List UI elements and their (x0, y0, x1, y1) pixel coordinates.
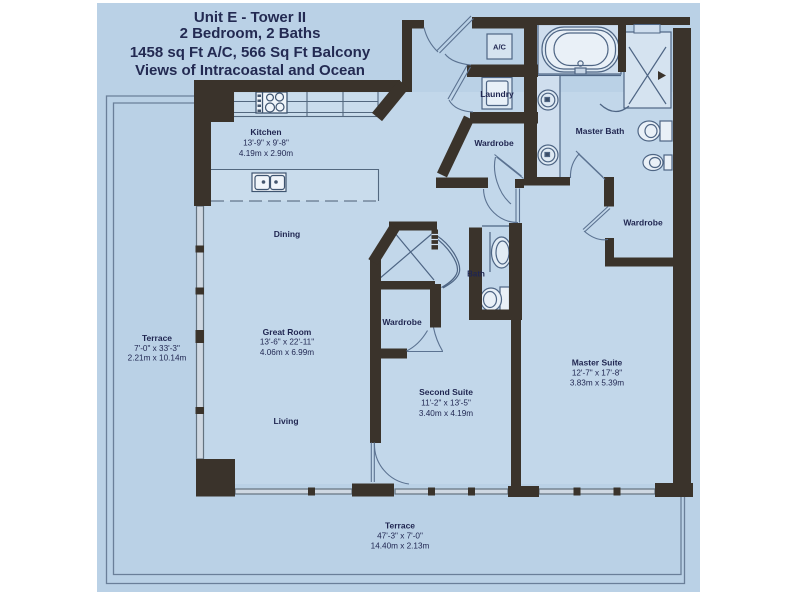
svg-text:3.40m x 4.19m: 3.40m x 4.19m (419, 409, 473, 418)
svg-text:3.83m x 5.39m: 3.83m x 5.39m (570, 379, 624, 388)
svg-text:2 Bedroom, 2 Baths: 2 Bedroom, 2 Baths (180, 25, 321, 42)
svg-text:4.19m x 2.90m: 4.19m x 2.90m (239, 149, 293, 158)
svg-text:14.40m x 2.13m: 14.40m x 2.13m (371, 542, 430, 551)
svg-text:11'-2" x 13'-5": 11'-2" x 13'-5" (421, 399, 471, 408)
svg-text:Kitchen: Kitchen (250, 127, 281, 137)
svg-text:Master Suite: Master Suite (572, 358, 623, 368)
svg-text:Unit E - Tower II: Unit E - Tower II (194, 9, 306, 26)
svg-text:Bath: Bath (467, 270, 485, 279)
svg-text:Laundry: Laundry (480, 89, 514, 99)
svg-text:Great Room: Great Room (263, 327, 312, 337)
svg-text:2.21m x 10.14m: 2.21m x 10.14m (128, 354, 187, 363)
svg-text:Living: Living (273, 416, 298, 426)
svg-text:Second Suite: Second Suite (419, 387, 473, 397)
svg-text:Wardrobe: Wardrobe (474, 138, 514, 148)
svg-text:Master Bath: Master Bath (576, 126, 625, 136)
svg-text:7'-0" x 33'-3": 7'-0" x 33'-3" (134, 344, 180, 353)
svg-text:1458 sq Ft A/C, 566 Sq Ft Balc: 1458 sq Ft A/C, 566 Sq Ft Balcony (130, 44, 371, 61)
svg-text:Wardrobe: Wardrobe (382, 317, 422, 327)
svg-text:Terrace: Terrace (142, 333, 172, 343)
svg-text:A/C: A/C (493, 43, 507, 52)
svg-text:Dining: Dining (274, 229, 300, 239)
svg-text:4.06m x 6.99m: 4.06m x 6.99m (260, 348, 314, 357)
svg-text:13'-9" x 9'-8": 13'-9" x 9'-8" (243, 139, 289, 148)
svg-text:12'-7" x 17'-8": 12'-7" x 17'-8" (572, 369, 622, 378)
svg-text:Terrace: Terrace (385, 521, 415, 531)
svg-text:Views of Intracoastal and Ocea: Views of Intracoastal and Ocean (135, 62, 365, 79)
svg-text:13'-6" x 22'-11": 13'-6" x 22'-11" (260, 338, 314, 347)
svg-text:Wardrobe: Wardrobe (623, 218, 663, 228)
svg-text:47'-3" x 7'-0": 47'-3" x 7'-0" (377, 532, 423, 541)
